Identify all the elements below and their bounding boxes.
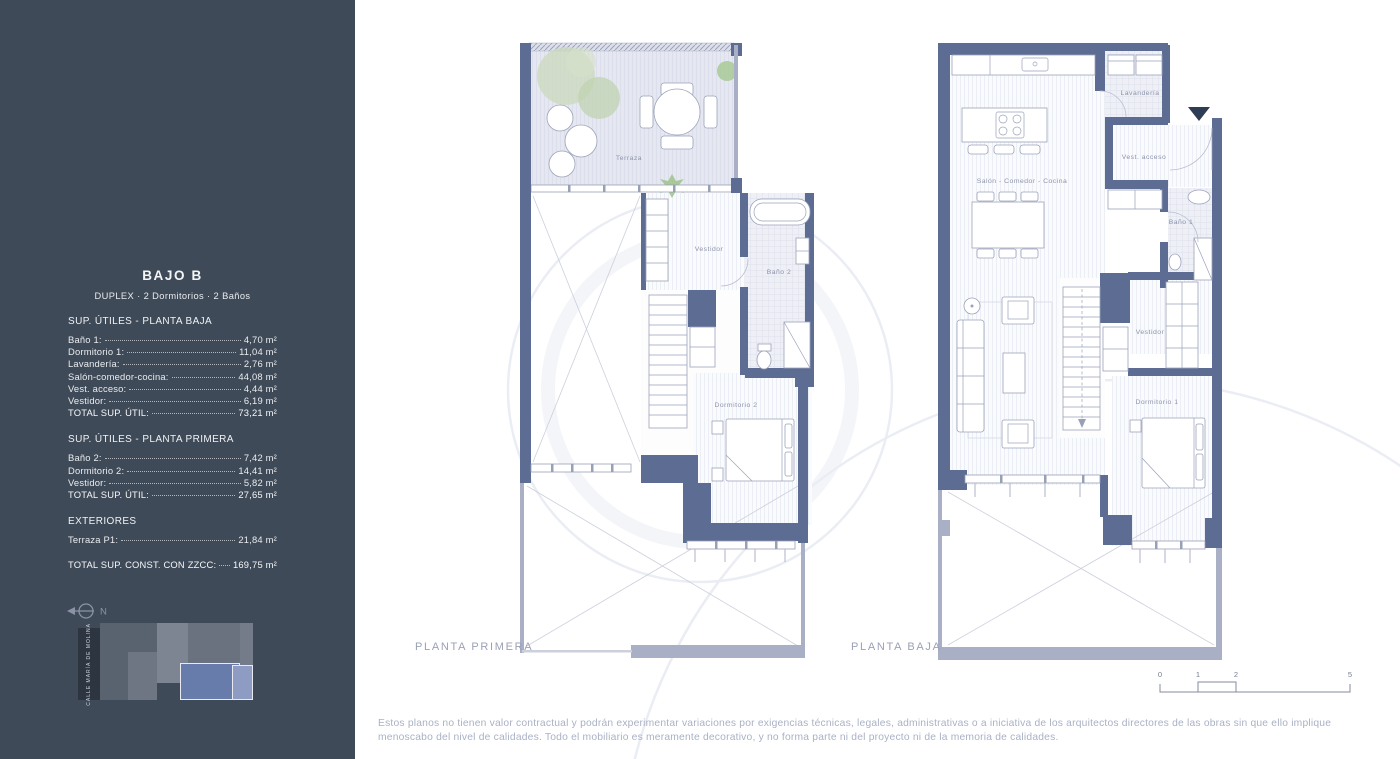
floor-plan-baja: Salón - Comedor - Cocina Lavandería Vest… <box>938 43 1222 660</box>
spec-label: Terraza P1: <box>68 534 118 546</box>
site-block-highlighted-secondary <box>232 665 253 700</box>
dotted-leader <box>109 483 241 484</box>
sidebar: BAJO B DUPLEX · 2 Dormitorios · 2 Baños … <box>0 0 355 759</box>
void-markers <box>948 492 1214 645</box>
window-band <box>531 185 734 192</box>
spec-row: Baño 1:4,70 m² <box>68 334 277 346</box>
dotted-leader <box>127 471 235 472</box>
dotted-leader <box>105 458 241 459</box>
scale-tick-1: 1 <box>1196 670 1200 679</box>
north-label: N <box>100 607 107 618</box>
spec-value: 73,21 m² <box>238 407 277 419</box>
dotted-leader <box>129 389 240 390</box>
unit-spec-panel: BAJO B DUPLEX · 2 Dormitorios · 2 Baños … <box>68 268 277 572</box>
site-block <box>128 652 157 700</box>
room-label-salon: Salón - Comedor - Cocina <box>977 178 1068 185</box>
dotted-leader <box>219 565 230 566</box>
room-label-vestidor: Vestidor <box>695 246 724 253</box>
dotted-leader <box>121 540 235 541</box>
spec-value: 44,08 m² <box>238 371 277 383</box>
scale-tick-5: 5 <box>1348 670 1352 679</box>
spec-rows-planta-primera: Baño 2:7,42 m² Dormitorio 2:14,41 m² Ves… <box>68 452 277 501</box>
spec-row: Dormitorio 1:11,04 m² <box>68 346 277 358</box>
spec-label: Vest. acceso: <box>68 383 126 395</box>
spec-value: 6,19 m² <box>244 395 277 407</box>
floor-plan-primera: Terraza Vestidor Baño 2 Dormitorio 2 <box>520 43 814 658</box>
spec-row-total: TOTAL SUP. ÚTIL:73,21 m² <box>68 407 277 419</box>
spec-label: TOTAL SUP. CONST. CON ZZCC: <box>68 559 216 571</box>
wardrobe <box>646 199 668 281</box>
spec-label: Dormitorio 2: <box>68 465 124 477</box>
spec-value: 21,84 m² <box>238 534 277 546</box>
street-strip: CALLE MARÍA DE MOLINA <box>78 628 100 700</box>
dotted-leader <box>105 340 241 341</box>
plan-caption-baja: PLANTA BAJA <box>851 641 942 653</box>
spec-row: Vestidor:6,19 m² <box>68 395 277 407</box>
spec-row: Vestidor:5,82 m² <box>68 477 277 489</box>
grand-total: TOTAL SUP. CONST. CON ZZCC:169,75 m² <box>68 559 277 571</box>
unit-subtitle: DUPLEX · 2 Dormitorios · 2 Baños <box>68 291 277 301</box>
spec-row: Vest. acceso:4,44 m² <box>68 383 277 395</box>
spec-row: Terraza P1:21,84 m² <box>68 534 277 546</box>
dotted-leader <box>152 413 235 414</box>
wardrobe <box>1166 282 1198 368</box>
north-indicator-icon: N <box>66 598 114 624</box>
scale-tick-0: 0 <box>1158 670 1162 679</box>
window-band <box>531 464 631 472</box>
room-label-dormitorio2: Dormitorio 2 <box>714 402 757 409</box>
spec-value: 11,04 m² <box>239 346 277 358</box>
closet <box>1108 190 1162 209</box>
spec-row: Dormitorio 2:14,41 m² <box>68 465 277 477</box>
spec-label: Dormitorio 1: <box>68 346 124 358</box>
spec-value: 169,75 m² <box>233 559 277 571</box>
section-heading-exteriores: EXTERIORES <box>68 516 277 527</box>
grand-total-row: TOTAL SUP. CONST. CON ZZCC:169,75 m² <box>68 559 277 571</box>
spec-row-total: TOTAL SUP. ÚTIL:27,65 m² <box>68 489 277 501</box>
dotted-leader <box>127 352 236 353</box>
spec-label: Baño 1: <box>68 334 102 346</box>
page-title: BAJO B <box>68 268 277 283</box>
spec-label: Baño 2: <box>68 452 102 464</box>
dotted-leader <box>152 495 235 496</box>
spec-value: 4,70 m² <box>244 334 277 346</box>
room-label-terraza: Terraza <box>616 155 642 162</box>
site-location-map: CALLE MARÍA DE MOLINA <box>78 623 253 700</box>
scale-bar: 0 1 2 5 <box>1150 668 1362 700</box>
site-block <box>240 623 253 667</box>
section-heading-planta-primera: SUP. ÚTILES - PLANTA PRIMERA <box>68 434 277 445</box>
room-label-vest-acceso: Vest. acceso <box>1122 154 1167 161</box>
spec-rows-planta-baja: Baño 1:4,70 m² Dormitorio 1:11,04 m² Lav… <box>68 334 277 419</box>
spec-value: 5,82 m² <box>244 477 277 489</box>
spec-label: Vestidor: <box>68 395 106 407</box>
dining-set <box>972 192 1044 258</box>
spec-row: Lavandería:2,76 m² <box>68 358 277 370</box>
room-label-bano1: Baño 1 <box>1169 219 1194 226</box>
spec-value: 2,76 m² <box>244 358 277 370</box>
plan-caption-primera: PLANTA PRIMERA <box>415 641 533 653</box>
room-label-vestidor: Vestidor <box>1136 329 1165 336</box>
spec-value: 7,42 m² <box>244 452 277 464</box>
section-heading-planta-baja: SUP. ÚTILES - PLANTA BAJA <box>68 316 277 327</box>
spec-label: Vestidor: <box>68 477 106 489</box>
spec-row: Baño 2:7,42 m² <box>68 452 277 464</box>
spec-value: 14,41 m² <box>238 465 277 477</box>
room-label-bano2: Baño 2 <box>767 269 792 276</box>
site-block-highlighted <box>180 663 240 700</box>
spec-rows-exteriores: Terraza P1:21,84 m² <box>68 534 277 546</box>
room-label-lavanderia: Lavandería <box>1120 90 1159 97</box>
dotted-leader <box>123 364 241 365</box>
window-band <box>965 475 1100 497</box>
scale-tick-2: 2 <box>1234 670 1238 679</box>
window-band <box>1132 541 1205 563</box>
street-label: CALLE MARÍA DE MOLINA <box>86 623 92 706</box>
entry-arrow-icon <box>1188 107 1210 121</box>
spec-label: Salón-comedor-cocina: <box>68 371 169 383</box>
dotted-leader <box>172 377 236 378</box>
spec-label: TOTAL SUP. ÚTIL: <box>68 407 149 419</box>
dotted-leader <box>109 401 241 402</box>
room-label-dormitorio1: Dormitorio 1 <box>1135 399 1178 406</box>
spec-row: Salón-comedor-cocina:44,08 m² <box>68 371 277 383</box>
spec-label: TOTAL SUP. ÚTIL: <box>68 489 149 501</box>
spec-label: Lavandería: <box>68 358 120 370</box>
window-band <box>687 541 795 562</box>
disclaimer-text: Estos planos no tienen valor contractual… <box>378 717 1335 745</box>
spec-value: 27,65 m² <box>238 489 277 501</box>
spec-value: 4,44 m² <box>244 383 277 395</box>
